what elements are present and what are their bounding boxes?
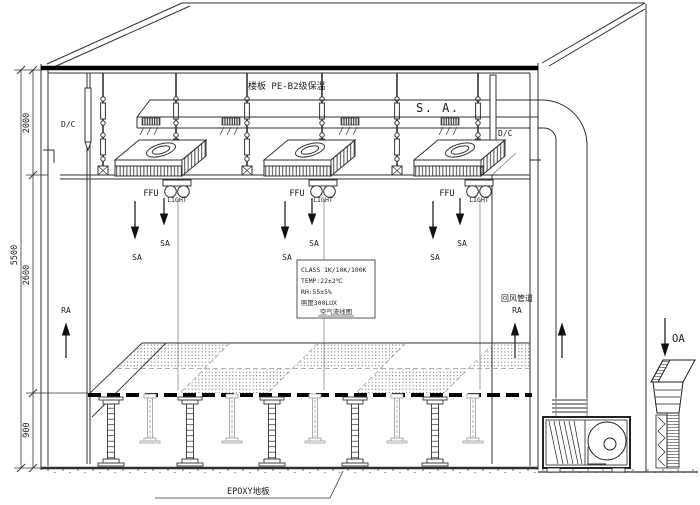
ahu-coil-section: [667, 413, 679, 468]
ffu-label-2: FFU: [289, 189, 304, 199]
ffu-label-1: FFU: [143, 189, 158, 199]
ffu-units: [115, 140, 505, 176]
dim-total-height: 5500: [10, 245, 20, 265]
duct-elbow-inner: [538, 128, 556, 398]
ground-speckle: [42, 470, 696, 475]
sa-label-5: SA: [430, 253, 440, 262]
dc-left-label: D/C: [61, 120, 76, 129]
supply-airflow-arrows: [132, 198, 464, 238]
damper-right: [490, 75, 496, 148]
ffu-label-3: FFU: [439, 189, 454, 199]
perforated-tile: [294, 344, 406, 368]
sa-label-4: SA: [309, 239, 319, 248]
duct-flex-connector: [552, 400, 588, 412]
ffu-3: [414, 140, 505, 176]
roof-left-slant: [47, 3, 190, 67]
light-label-1: LIGHT: [167, 196, 187, 204]
sa-label-2: SA: [160, 239, 170, 248]
duct-elbow-outer: [542, 100, 587, 398]
ra-right-label: RA: [512, 306, 522, 315]
spec-box: CLASS 1K/10K/100K TEMP:22±2℃ RH:55±5% 照度…: [297, 260, 375, 318]
perforated-tile: [181, 369, 293, 393]
ahu-unit: [543, 413, 679, 472]
oa-label: OA: [672, 333, 685, 345]
ffu-2: [264, 140, 355, 176]
sa-label-1: SA: [132, 253, 142, 262]
spec-lux: 照度300LUX: [301, 298, 337, 307]
ahu-foot: [547, 468, 560, 472]
ffu-1: [115, 140, 206, 176]
slab-insulation-label: 楼板 PE-B2级保温: [248, 80, 326, 92]
spec-caption: 空气流线图: [320, 307, 352, 316]
roof-right-slant: [542, 3, 645, 66]
oa-arrow: [662, 318, 669, 355]
return-duct-label: 回风管道: [501, 293, 533, 303]
light-label-3: LIGHT: [469, 196, 489, 204]
room-shell: [41, 3, 698, 475]
epoxy-floor-label: EPOXY地板: [227, 486, 270, 497]
floor-left-slant: [88, 343, 166, 417]
light-1: [163, 180, 191, 197]
right-wall-bracket: [530, 160, 541, 173]
spec-class: CLASS 1K/10K/100K: [301, 266, 367, 274]
slot-diffusers: [140, 118, 459, 135]
dim-room-height: 2600: [22, 265, 32, 285]
dim-ceiling-plenum: 2000: [22, 113, 32, 133]
dim-raised-floor: 900: [22, 422, 32, 437]
perforated-tile: [470, 344, 530, 368]
light-label-2: LIGHT: [313, 196, 333, 204]
ahu-foot: [612, 468, 625, 472]
damper-left: [85, 88, 91, 150]
drawing-canvas: 5500 2000 2600 900: [0, 0, 700, 505]
supply-air-label: S. A.: [416, 101, 460, 115]
ra-left-label: RA: [61, 306, 71, 315]
cleanroom-airflow-section-drawing: 5500 2000 2600 900: [0, 0, 700, 505]
spec-rh: RH:55±5%: [301, 288, 332, 296]
sa-label-6: SA: [457, 239, 467, 248]
spec-temp: TEMP:22±2℃: [301, 277, 343, 285]
dc-right-label: D/C: [498, 129, 513, 138]
perforated-tile: [118, 344, 230, 368]
light-2: [309, 180, 337, 197]
light-3: [465, 180, 493, 197]
sa-label-3: SA: [282, 253, 292, 262]
raised-floor: [88, 343, 532, 417]
perforated-tile: [357, 369, 469, 393]
oa-intake-hood: [651, 360, 695, 413]
